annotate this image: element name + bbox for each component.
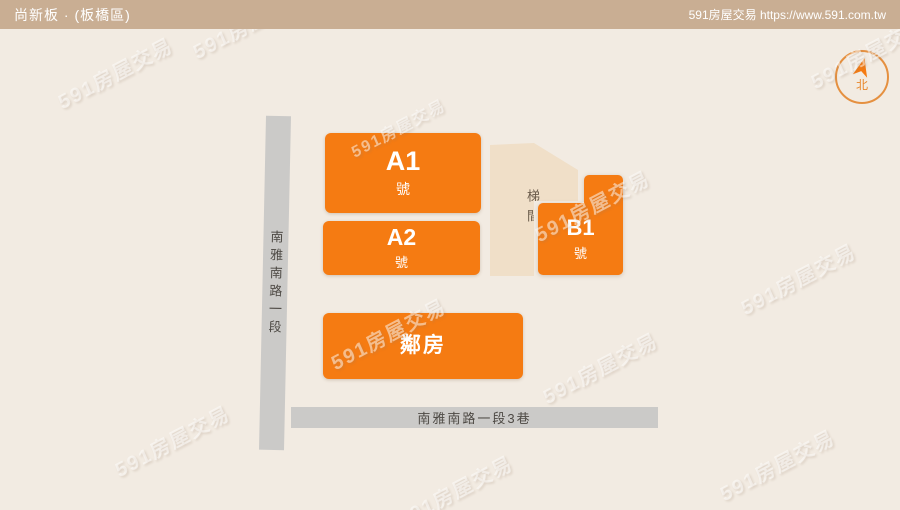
site-url-text: 591房屋交易 https://www.591.com.tw — [689, 6, 886, 23]
stairwell-label: 梯間 — [498, 189, 542, 229]
compass: 北 — [835, 50, 889, 104]
watermark: 591房屋交易 — [736, 235, 860, 321]
block-b1-label: B1 — [566, 216, 594, 240]
block-neighbor-label: 鄰房 — [400, 334, 446, 357]
watermark: 591房屋交易 — [538, 324, 662, 410]
block-a1-label: A1 — [386, 147, 421, 177]
block-a2-unit-suffix: 號 — [395, 252, 408, 271]
header: 尚新板 · (板橋區) 591房屋交易 https://www.591.com.… — [0, 0, 900, 29]
road-horizontal-label: 南雅南路一段3巷 — [417, 408, 531, 427]
road-horizontal: 南雅南路一段3巷 — [291, 407, 658, 428]
site-plan-page: 尚新板 · (板橋區) 591房屋交易 https://www.591.com.… — [0, 0, 900, 510]
north-arrow-icon — [851, 57, 873, 79]
block-a1-unit-suffix: 號 — [396, 179, 410, 199]
watermark: 591房屋交易 — [110, 397, 234, 483]
watermark: 591房屋交易 — [715, 421, 839, 507]
building-block-neighbor: 鄰房 — [323, 313, 523, 379]
block-b1-unit-suffix: 號 — [574, 243, 587, 262]
building-block-a2[interactable]: A2 號 — [323, 221, 480, 275]
road-vertical-label: 南雅南路一段 — [262, 230, 286, 450]
road-vertical: 南雅南路一段 — [259, 116, 291, 450]
page-title: 尚新板 · (板橋區) — [14, 5, 131, 25]
watermark: 591房屋交易 — [53, 29, 177, 115]
building-block-b1[interactable]: B1 號 — [538, 203, 623, 275]
watermark: 591房屋交易 — [393, 447, 517, 510]
compass-north-label: 北 — [856, 79, 868, 91]
block-a2-label: A2 — [387, 225, 416, 250]
site-plan-map: 南雅南路一段 南雅南路一段3巷 梯間 A1 號 A2 號 B1 號 鄰房 — [0, 0, 900, 510]
building-block-a1[interactable]: A1 號 — [325, 133, 481, 213]
